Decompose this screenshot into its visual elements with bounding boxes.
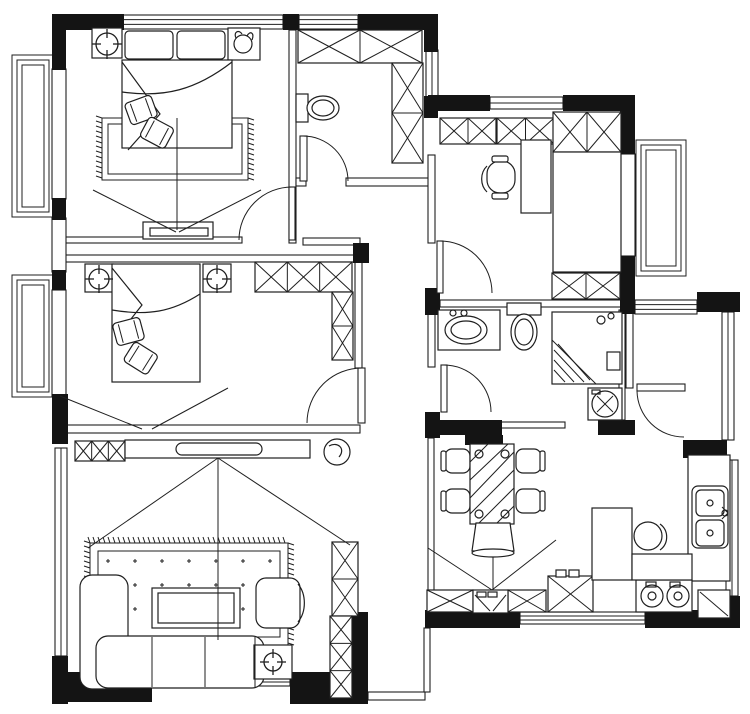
rug-living-fringe [84, 571, 90, 573]
rug-bedroom1-fringe [248, 173, 254, 175]
window-top-bedroom1 [122, 15, 283, 29]
bed-study [553, 152, 621, 272]
wall-segment [425, 420, 502, 435]
wall-segment [428, 95, 490, 111]
desk-chair-back [482, 166, 487, 192]
dining-chair [445, 489, 470, 513]
window-kitchen-top [635, 300, 697, 314]
rug-living-fringe [203, 537, 205, 543]
threshold-hallway [303, 238, 360, 245]
pillow [125, 31, 173, 59]
rug-bedroom1-fringe [248, 163, 254, 165]
pendant-cabinet-mark [488, 592, 497, 597]
rug-living-fringe [238, 537, 240, 543]
rug-bedroom1-fringe [248, 148, 254, 150]
door-kitchen-swing [637, 391, 684, 437]
rug-living-fringe [228, 537, 230, 543]
dining-chair [445, 449, 470, 473]
wall-wc-bottom-right [346, 178, 430, 186]
fridge-knob [556, 570, 566, 577]
rug-living-fringe [118, 537, 120, 543]
rug-living-fringe [168, 537, 170, 543]
decor-speaker [324, 439, 350, 465]
wall-bedroom2-top [65, 255, 362, 262]
wall-segment [283, 14, 299, 30]
rug-living-fringe [84, 556, 90, 558]
vanity-sink-inner [451, 321, 481, 339]
desk-study [521, 140, 551, 213]
rug-bedroom1-fringe [248, 178, 254, 180]
sofa-base [96, 636, 264, 688]
dining-chair [516, 449, 541, 473]
rug-bedroom1-fringe [96, 161, 102, 163]
sill-bay-bedroom1 [52, 69, 66, 199]
dining-chair [516, 489, 541, 513]
wall-dining-left [428, 438, 434, 610]
rug-living-fringe [288, 633, 294, 635]
rug-bedroom1-fringe [96, 116, 102, 118]
rug-living-fringe [243, 537, 245, 543]
rug-living-fringe [288, 548, 294, 550]
rug-bedroom1-fringe [96, 146, 102, 148]
wall-segment [353, 243, 369, 263]
rug-living-fringe [198, 537, 200, 543]
projection-line [218, 458, 350, 545]
sill-bay-study [620, 154, 635, 256]
door-wc-swing [303, 136, 348, 181]
rug-living-fringe [183, 537, 185, 543]
rug-bedroom1-fringe [96, 121, 102, 123]
desk-chair-arm [492, 193, 508, 199]
wall-living-top [65, 425, 360, 433]
wall-kitchen-left [626, 313, 633, 388]
side-chair-base [472, 549, 514, 557]
toilet-tank-wc [296, 94, 308, 122]
rug-bedroom1-fringe [96, 136, 102, 138]
sink-basin [696, 490, 724, 516]
rug-living-fringe [253, 537, 255, 543]
projection-line [93, 190, 176, 232]
rug-living-fringe [153, 537, 155, 543]
rug-living-fringe [288, 638, 294, 640]
door-bedroom1-swing [239, 187, 292, 240]
rug-living-fringe [288, 558, 294, 560]
rug-bedroom1-fringe [96, 156, 102, 158]
rug-living-fringe [278, 537, 280, 543]
rug-bedroom1-fringe [248, 138, 254, 140]
bay-window-study [636, 140, 686, 276]
rug-bedroom1-fringe [96, 131, 102, 133]
wall-bath-left [428, 313, 435, 367]
wall-left-mid [52, 218, 66, 272]
door-kitchen-leaf [637, 384, 685, 391]
floor-plan-svg [0, 0, 750, 714]
door-bathroom-leaf [441, 365, 447, 412]
bar-counter-h [632, 554, 692, 580]
door-bathroom-swing [444, 365, 491, 412]
bar-counter-v [592, 508, 632, 580]
rug-bedroom1-fringe [248, 168, 254, 170]
rug-bedroom1-fringe [248, 123, 254, 125]
window-dining-bottom [520, 612, 645, 624]
coffee-table-glass [158, 593, 234, 623]
rug-living-fringe [158, 537, 160, 543]
rug-living-fringe [258, 537, 260, 543]
pendant-cabinet-mark [477, 592, 486, 597]
wall-study-left [428, 155, 435, 243]
rug-bedroom1-fringe [96, 151, 102, 153]
desk-chair-arm [492, 156, 508, 162]
pillow [177, 31, 225, 59]
rug-living-fringe [123, 537, 125, 543]
bar-chair-back [660, 524, 667, 550]
shower-enclosure [552, 312, 622, 384]
rug-living-fringe [178, 537, 180, 543]
wall-segment [598, 420, 635, 435]
rug-living-fringe [208, 537, 210, 543]
rug-living-fringe [273, 537, 275, 543]
rug-bedroom1-fringe [248, 158, 254, 160]
wall-segment [620, 256, 635, 314]
rug-living-fringe [268, 537, 270, 543]
rug-bedroom1-fringe [248, 118, 254, 120]
dining-chair-back [540, 491, 545, 511]
rug-living-fringe [283, 537, 285, 543]
wall-segment [697, 292, 740, 312]
door-bedroom2-swing [307, 368, 362, 423]
speaker-swirl [329, 444, 342, 457]
rug-bedroom1-fringe [96, 171, 102, 173]
rug-living-fringe [133, 537, 135, 543]
rug-living-fringe [113, 537, 115, 543]
fridge-knob [569, 570, 579, 577]
stove [636, 580, 692, 612]
rug-living-fringe [84, 561, 90, 563]
wall-bath-bottom [500, 422, 565, 428]
wall-segment [424, 26, 438, 52]
rug-living-fringe [108, 537, 110, 543]
toilet-tank [507, 303, 541, 315]
projection-line [60, 396, 142, 429]
rug-living-fringe [223, 537, 225, 543]
wall-segment [52, 198, 66, 220]
rug-bedroom1-fringe [96, 166, 102, 168]
window-top-wc [299, 15, 358, 29]
projection-line [179, 190, 261, 232]
rug-living-fringe [93, 537, 95, 543]
rug-living-fringe [193, 537, 195, 543]
projection-line [88, 458, 218, 548]
sill-bay-bedroom2 [52, 290, 66, 396]
tv [176, 443, 262, 455]
door-study-swing [440, 241, 492, 293]
rug-living-fringe [188, 537, 190, 543]
wall-segment [620, 96, 635, 154]
rug-living-fringe [213, 537, 215, 543]
rug-living-fringe [288, 553, 294, 555]
toilet-bowl-bath-inner [515, 319, 533, 345]
rug-bedroom1-fringe [96, 141, 102, 143]
rug-living-fringe [233, 537, 235, 543]
dining-chair-back [441, 451, 446, 471]
wall-segment [52, 270, 66, 290]
wall-corridor-right [424, 628, 430, 692]
rug-bedroom1-fringe [248, 133, 254, 135]
dining-chair-back [540, 451, 545, 471]
desk-chair-seat [487, 161, 515, 193]
wall-bedroom2-right [355, 262, 362, 368]
rug-bedroom1-fringe [96, 176, 102, 178]
bar-chair-seat [634, 522, 662, 550]
shower-seat [607, 352, 620, 370]
dining-side-chair [472, 523, 514, 551]
rug-bedroom1-fringe [248, 143, 254, 145]
rug-living-fringe [288, 563, 294, 565]
rug-living-fringe [143, 537, 145, 543]
rug-living-fringe [173, 537, 175, 543]
projection-line [152, 388, 228, 429]
floor-plan-page [0, 0, 750, 714]
nightstand-decor-box [228, 28, 260, 60]
door-bedroom2-leaf [358, 368, 365, 423]
rug-living-fringe [84, 551, 90, 553]
opening-corridor-end [368, 692, 425, 700]
wall-segment [52, 394, 68, 444]
rug-bedroom1-fringe [248, 128, 254, 130]
rug-living-fringe [84, 566, 90, 568]
rug-bedroom1-fringe [248, 153, 254, 155]
bay-window-bedroom2 [12, 275, 54, 397]
rug-living-fringe [248, 537, 250, 543]
wall-segment [52, 14, 66, 70]
rug-bedroom1-fringe [96, 126, 102, 128]
rug-living-fringe [288, 573, 294, 575]
rug-living-fringe [128, 537, 130, 543]
rug-living-fringe [163, 537, 165, 543]
rug-living-fringe [148, 537, 150, 543]
sink-basin [696, 520, 724, 546]
rug-living-fringe [263, 537, 265, 543]
door-bedroom1-leaf [289, 187, 295, 240]
armchair [256, 578, 300, 628]
rug-living-fringe [288, 543, 294, 545]
rug-living-fringe [288, 568, 294, 570]
dining-chair-back [441, 491, 446, 511]
rug-living-fringe [138, 537, 140, 543]
bay-window-bedroom1 [12, 55, 54, 217]
toilet-bowl-wc-inner [312, 100, 334, 116]
door-wc-leaf [300, 136, 307, 181]
door-study-leaf [437, 241, 443, 293]
